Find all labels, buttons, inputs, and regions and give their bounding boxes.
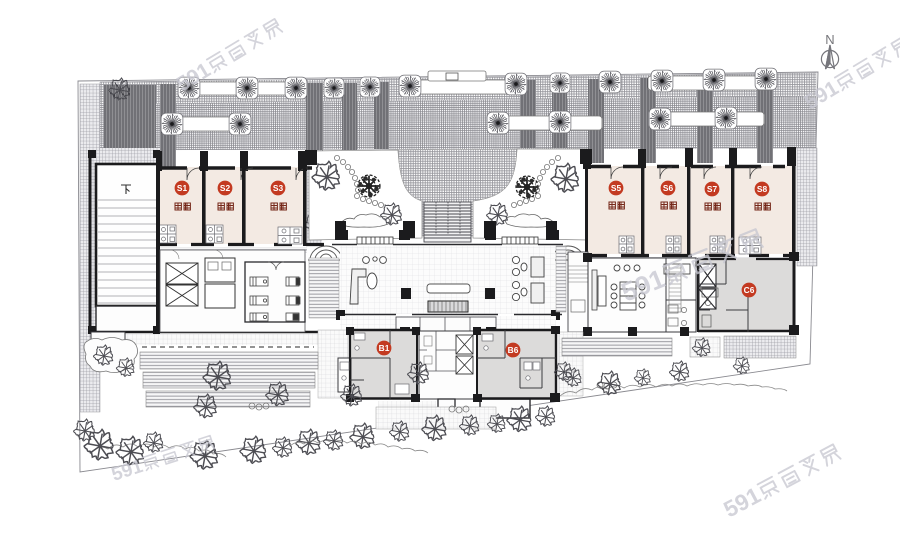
- svg-text:S7: S7: [707, 184, 718, 194]
- svg-text:C6: C6: [744, 285, 755, 295]
- svg-text:B6: B6: [508, 345, 519, 355]
- svg-text:S5: S5: [611, 183, 622, 193]
- svg-text:S6: S6: [663, 183, 674, 193]
- svg-text:S1: S1: [177, 183, 188, 193]
- svg-text:B1: B1: [379, 343, 390, 353]
- svg-text:S2: S2: [220, 183, 231, 193]
- svg-text:S8: S8: [757, 184, 768, 194]
- svg-text:S3: S3: [273, 183, 284, 193]
- svg-text:N: N: [825, 32, 834, 47]
